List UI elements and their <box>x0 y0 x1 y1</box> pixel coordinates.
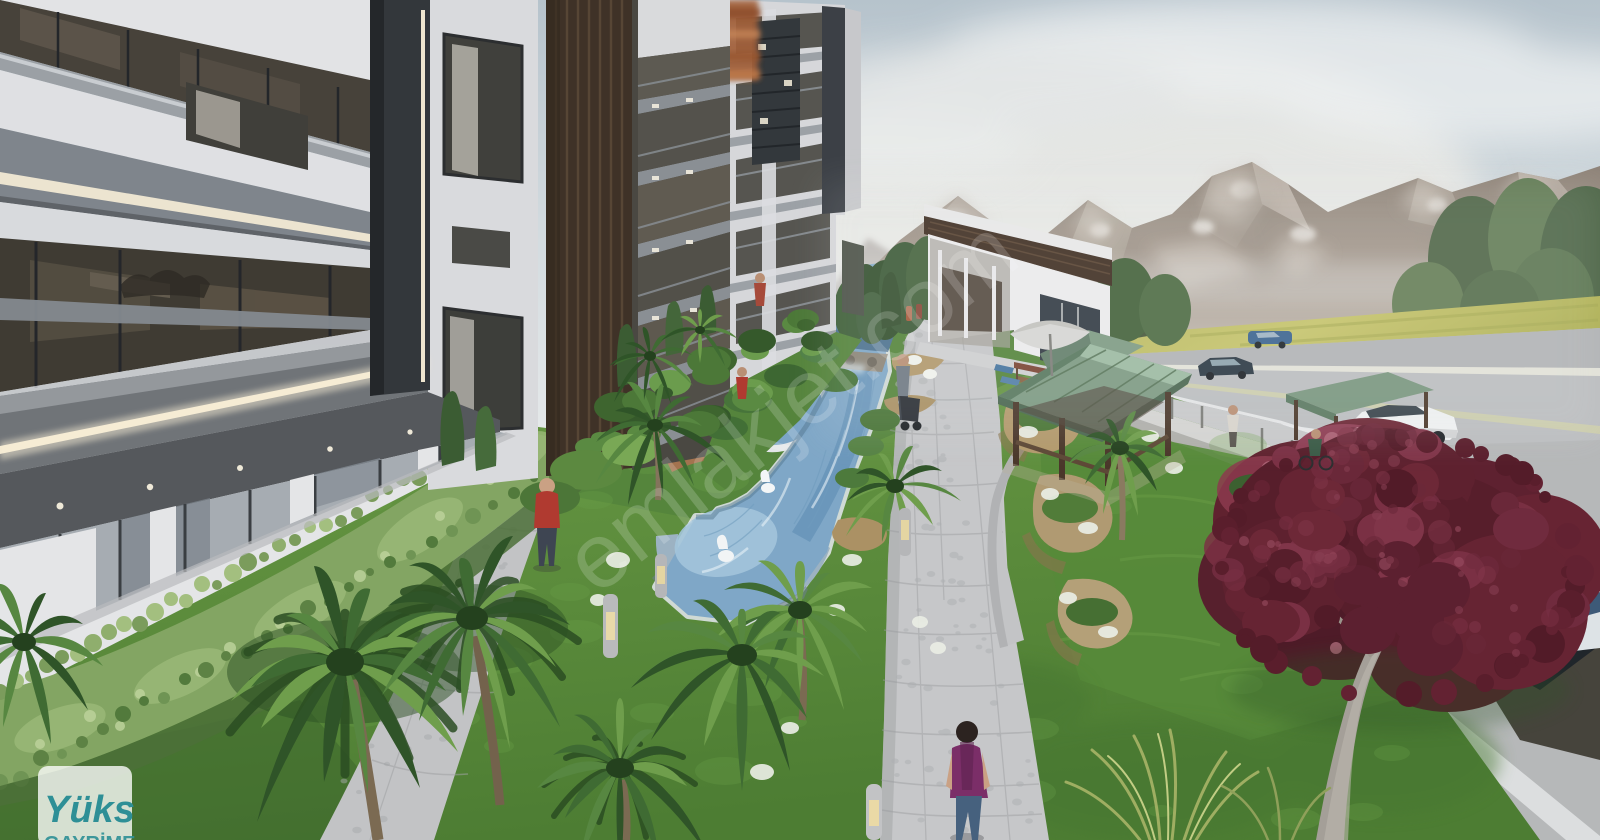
svg-text:Yüks: Yüks <box>44 789 135 831</box>
svg-text:GAYRİME: GAYRİME <box>44 832 136 840</box>
